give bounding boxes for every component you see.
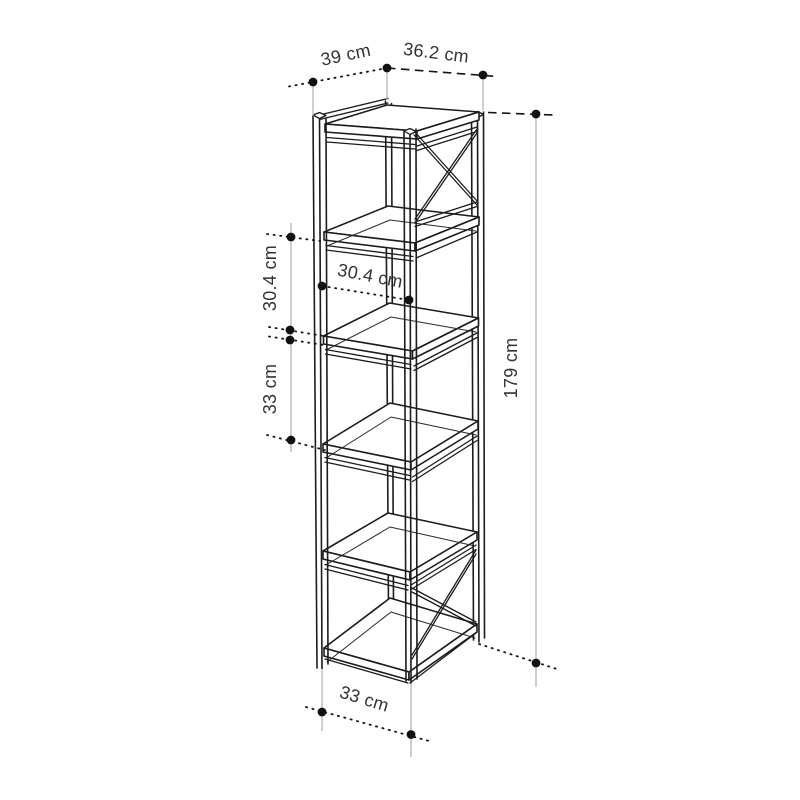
shelf-panel-4	[323, 403, 478, 470]
label-overall-height: 179 cm	[501, 338, 521, 399]
shelf-panel-3	[324, 303, 479, 359]
label-compartment-height: 30.4 cm	[260, 245, 280, 311]
shelf-panels	[323, 105, 479, 680]
furniture-dimension-diagram: 39 cm 36.2 cm 30.4 cm 33 cm 30.4 cm 179 …	[0, 0, 800, 800]
label-compartment-width: 30.4 cm	[336, 260, 405, 292]
label-shelf-spacing: 33 cm	[260, 364, 280, 415]
right-back-post	[472, 112, 485, 643]
label-width-top: 36.2 cm	[402, 39, 470, 67]
diagram-canvas: 39 cm 36.2 cm 30.4 cm 33 cm 30.4 cm 179 …	[0, 0, 800, 800]
bookshelf-drawing	[313, 99, 485, 684]
label-base-width: 33 cm	[337, 682, 391, 716]
label-depth-top: 39 cm	[319, 40, 373, 70]
left-front-post	[313, 113, 328, 669]
